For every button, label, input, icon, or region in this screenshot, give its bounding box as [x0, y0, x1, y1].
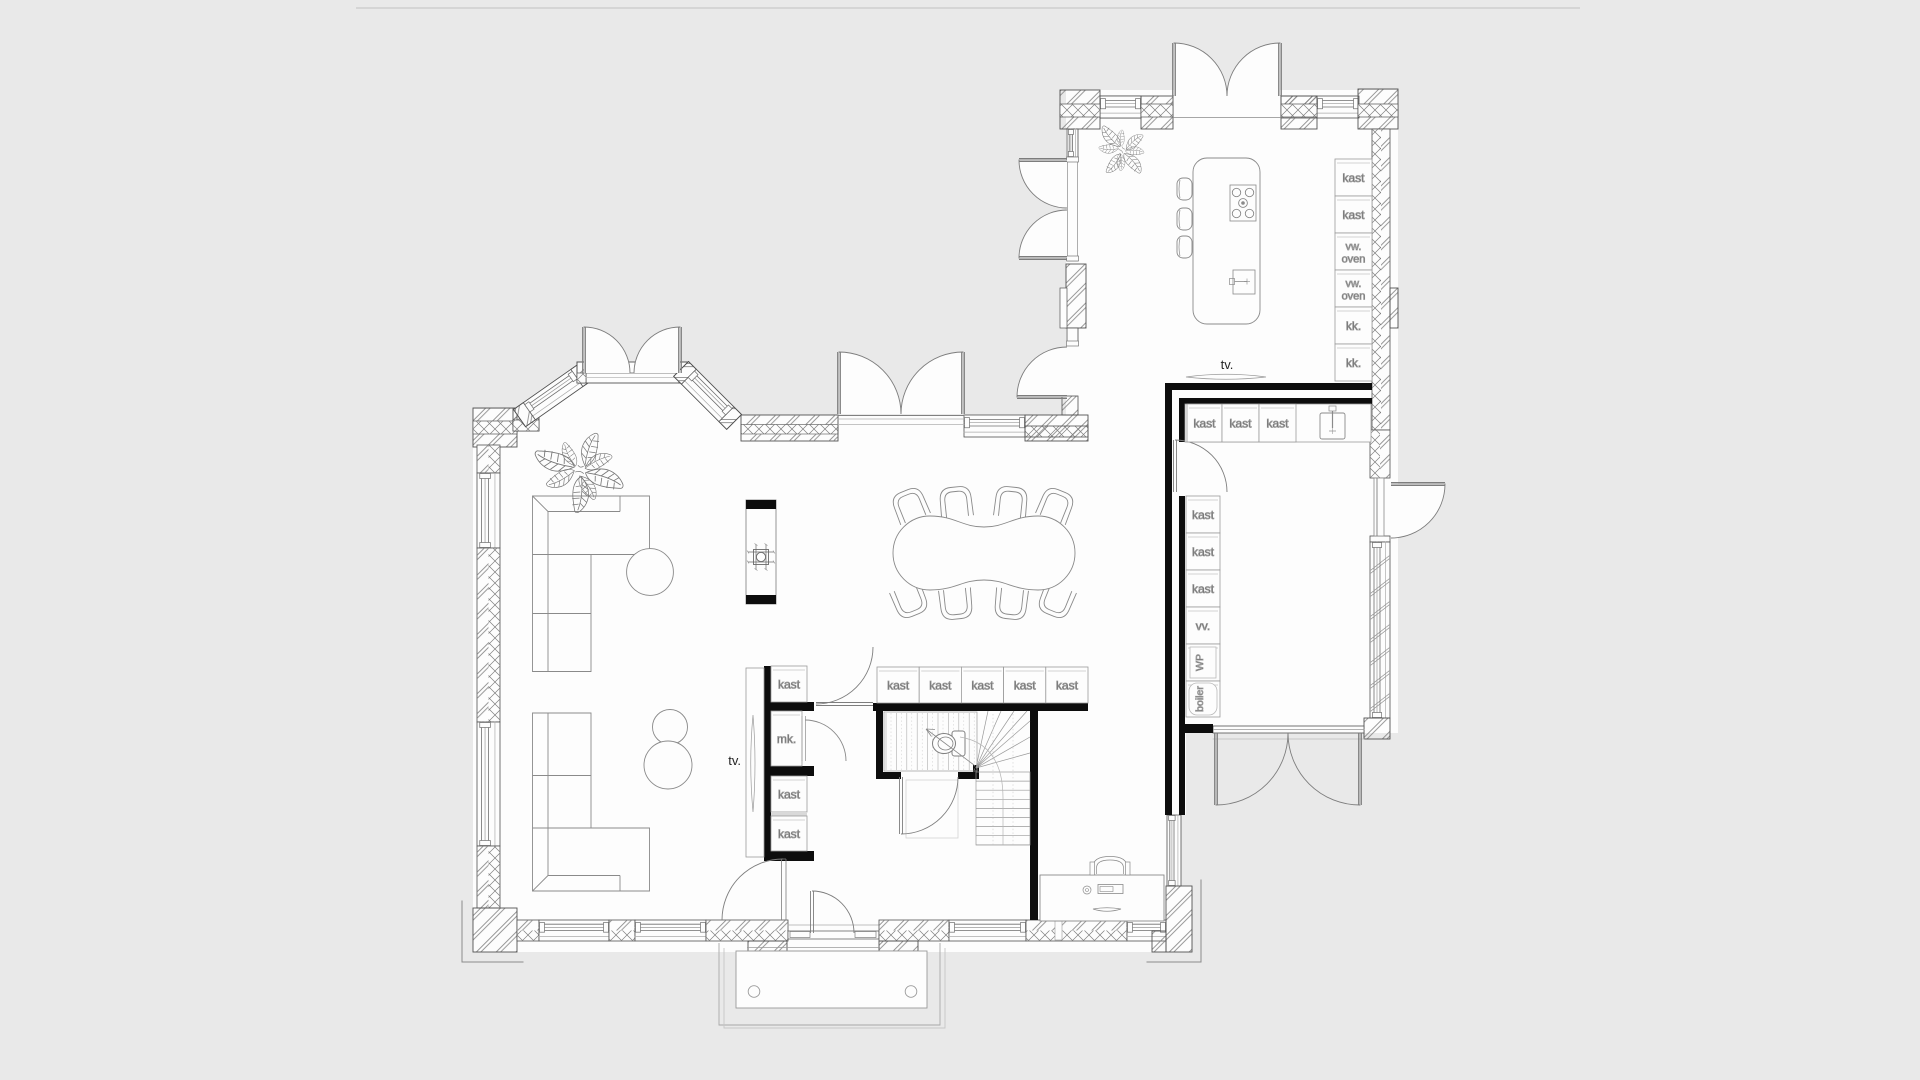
svg-text:kast: kast	[1342, 171, 1365, 185]
svg-text:tv.: tv.	[1221, 357, 1234, 372]
svg-text:kast: kast	[1266, 417, 1289, 431]
svg-text:tv.: tv.	[728, 753, 741, 768]
svg-text:kk.: kk.	[1346, 319, 1361, 333]
svg-text:kast: kast	[1014, 679, 1037, 693]
svg-text:kast: kast	[1056, 679, 1079, 693]
svg-text:kast: kast	[1193, 417, 1216, 431]
svg-text:mk.: mk.	[777, 732, 796, 746]
svg-text:kast: kast	[778, 827, 801, 841]
svg-text:oven: oven	[1342, 254, 1366, 266]
svg-text:kast: kast	[1192, 545, 1215, 559]
svg-text:kast: kast	[887, 679, 910, 693]
svg-text:boiler: boiler	[1194, 686, 1206, 712]
svg-text:kast: kast	[778, 678, 801, 692]
svg-text:oven: oven	[1342, 291, 1366, 303]
svg-text:kast: kast	[1192, 508, 1215, 522]
svg-text:kast: kast	[1342, 208, 1365, 222]
svg-text:WP: WP	[1194, 654, 1206, 671]
svg-text:kk.: kk.	[1346, 356, 1361, 370]
svg-text:kast: kast	[929, 679, 952, 693]
svg-text:kast: kast	[1229, 417, 1252, 431]
svg-text:vw.: vw.	[1346, 278, 1362, 290]
svg-text:vv.: vv.	[1196, 619, 1210, 633]
svg-text:kast: kast	[778, 788, 801, 802]
svg-text:vw.: vw.	[1346, 241, 1362, 253]
svg-text:kast: kast	[971, 679, 994, 693]
svg-text:kast: kast	[1192, 582, 1215, 596]
